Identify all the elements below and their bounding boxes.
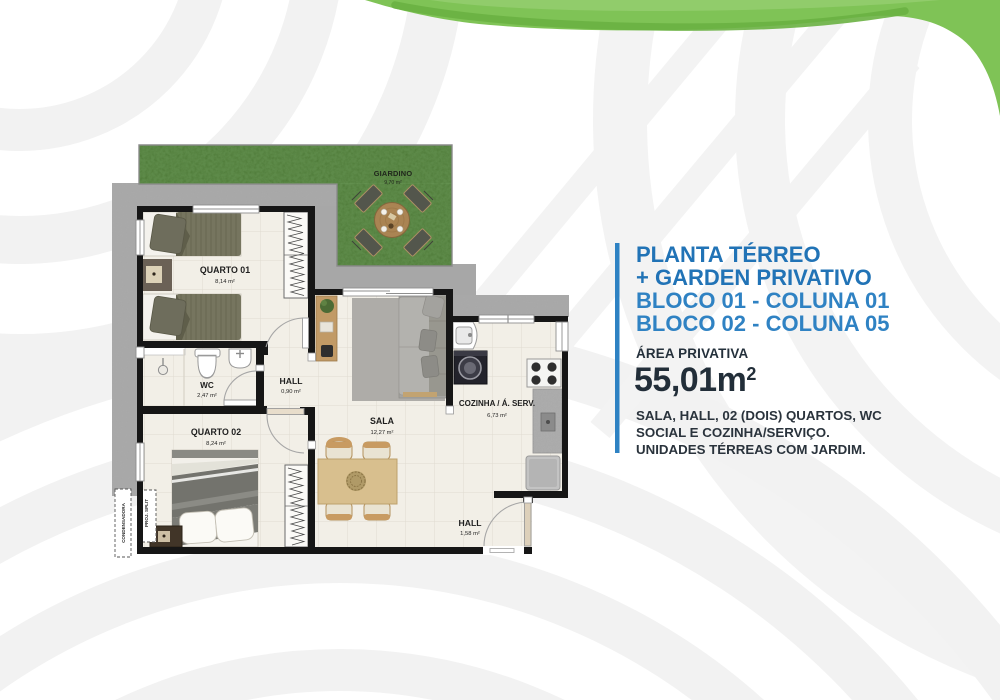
svg-text:UNIDADES TÉRREAS COM JARDIM.: UNIDADES TÉRREAS COM JARDIM. — [636, 442, 866, 457]
svg-text:2,47 m²: 2,47 m² — [197, 393, 217, 399]
svg-text:HALL: HALL — [280, 376, 303, 386]
svg-text:QUARTO 01: QUARTO 01 — [200, 265, 250, 275]
svg-text:COZINHA / Á. SERV.: COZINHA / Á. SERV. — [459, 399, 535, 408]
svg-text:GIARDINO: GIARDINO — [374, 169, 413, 178]
svg-text:8,24 m²: 8,24 m² — [206, 441, 226, 447]
svg-text:QUARTO 02: QUARTO 02 — [191, 427, 241, 437]
svg-text:BLOCO 02 - COLUNA 05: BLOCO 02 - COLUNA 05 — [636, 311, 889, 336]
svg-text:HALL: HALL — [459, 518, 482, 528]
svg-text:SALA, HALL, 02 (DOIS) QUARTOS,: SALA, HALL, 02 (DOIS) QUARTOS, WC — [636, 408, 882, 423]
svg-text:PLANTA TÉRREO: PLANTA TÉRREO — [636, 242, 821, 267]
svg-text:SALA: SALA — [370, 416, 395, 426]
svg-text:SOCIAL E COZINHA/SERVIÇO.: SOCIAL E COZINHA/SERVIÇO. — [636, 425, 830, 440]
svg-text:CONDENSADORA: CONDENSADORA — [121, 502, 126, 542]
svg-text:WC: WC — [200, 381, 214, 390]
svg-text:PROJ. SPLIT: PROJ. SPLIT — [144, 499, 149, 527]
svg-text:8,14 m²: 8,14 m² — [215, 279, 235, 285]
svg-text:9,70 m²: 9,70 m² — [384, 180, 402, 186]
svg-text:ÁREA PRIVATIVA: ÁREA PRIVATIVA — [636, 346, 749, 361]
svg-text:12,27 m²: 12,27 m² — [371, 430, 394, 436]
svg-text:6,73 m²: 6,73 m² — [487, 413, 507, 419]
svg-text:BLOCO 01 - COLUNA 01: BLOCO 01 - COLUNA 01 — [636, 288, 889, 313]
svg-text:55,01m2: 55,01m2 — [634, 361, 756, 399]
svg-text:0,90 m²: 0,90 m² — [281, 389, 301, 395]
svg-text:1,58 m²: 1,58 m² — [460, 531, 480, 537]
svg-text:+ GARDEN PRIVATIVO: + GARDEN PRIVATIVO — [636, 265, 872, 290]
